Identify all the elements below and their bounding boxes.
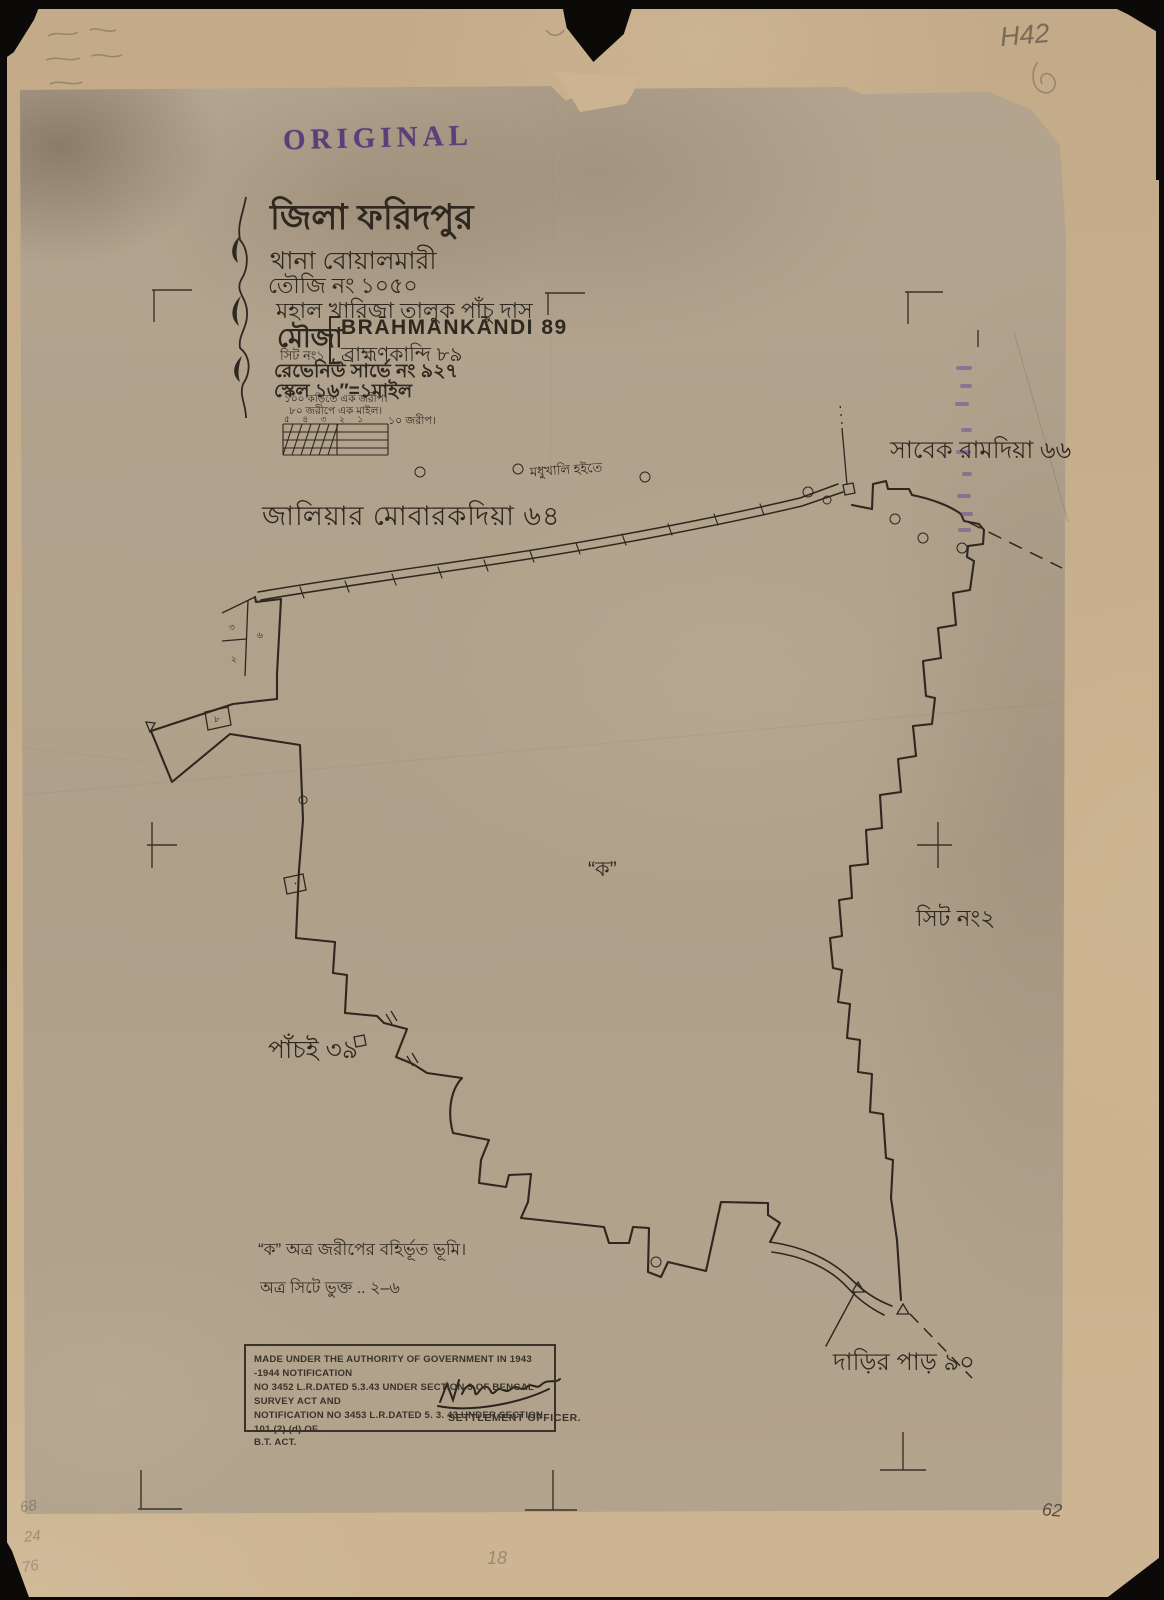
plot-number-top: ৩ (229, 620, 235, 635)
settlement-officer-label: SETTLEMENT OFFICER. (448, 1412, 581, 1424)
pencil-stack-1: 68 (19, 1497, 38, 1516)
original-stamp: ORIGINAL (283, 120, 474, 158)
mouza-name-en: BRĀHMANKĀNDI 89 (341, 316, 568, 340)
label-neighbor-ne: সাবেক রামদিয়া ৬৬ (890, 432, 1071, 472)
label-neighbor-se: দাড়ির পাড় ৯০ (833, 1344, 975, 1384)
pencil-note-h42: H42 (999, 18, 1051, 53)
plot-number-right: ৬ (257, 628, 263, 643)
scanned-cadastral-map: ORIGINAL জিলা ফরিদপুর থানা বোয়ালমারী তৌ… (0, 0, 1164, 1600)
photo-edge-right (1156, 30, 1164, 180)
note-sheet-included: অত্র সিটে ভুক্ত .. ২–৬ (260, 1275, 400, 1302)
plot-number-wedge: ৮ (214, 712, 220, 727)
authority-text-2: NO 3452 L.R.DATED 5.3.43 UNDER SECTION 3… (254, 1381, 546, 1409)
authority-text-4: B.T. ACT. (254, 1436, 546, 1450)
pencil-stack-2: 24 (23, 1527, 41, 1546)
authority-text-1: MADE UNDER THE AUTHORITY OF GOVERNMENT I… (254, 1353, 546, 1381)
scale-bar-numbers: ৫ ৪ ৩ ২ ১ (284, 412, 368, 427)
label-neighbor-nw: জালিয়ার মোবারকদিয়া ৬৪ (262, 496, 561, 541)
pencil-note-62: 62 (1041, 1499, 1062, 1521)
plot-number-bottom: ২ (231, 652, 237, 667)
map-sheet (20, 86, 1066, 1514)
label-neighbor-sw: পাঁচই ৩৯ (268, 1030, 358, 1073)
pencil-stack-3: 76 (21, 1557, 40, 1577)
scale-bar-unit: ১০ জরীপ। (388, 412, 436, 431)
label-sheet-2: সিট নং২ (916, 900, 995, 939)
pencil-note-18: 18 (487, 1548, 507, 1569)
label-center-mark: “ক” (588, 853, 617, 888)
note-excluded-land: “ক” অত্র জরীপের বহির্ভূত ভূমি। (258, 1237, 466, 1265)
